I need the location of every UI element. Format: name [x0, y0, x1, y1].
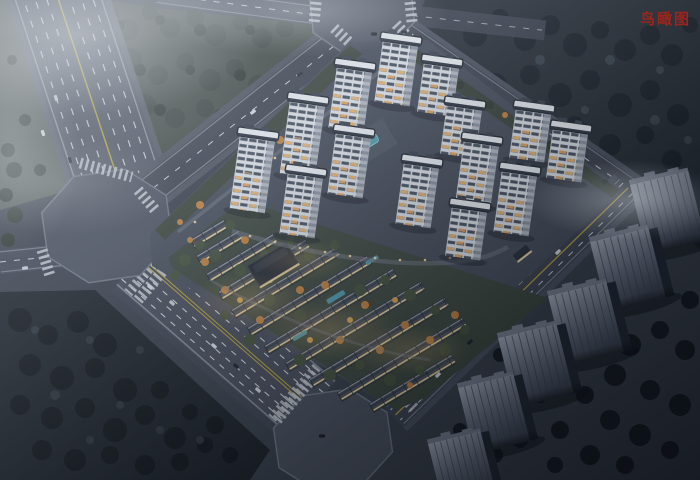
view-type-label: 鸟瞰图 — [640, 8, 691, 29]
aerial-render-screenshot: 鸟瞰图 — [0, 0, 700, 480]
aerial-view-image — [0, 0, 700, 480]
